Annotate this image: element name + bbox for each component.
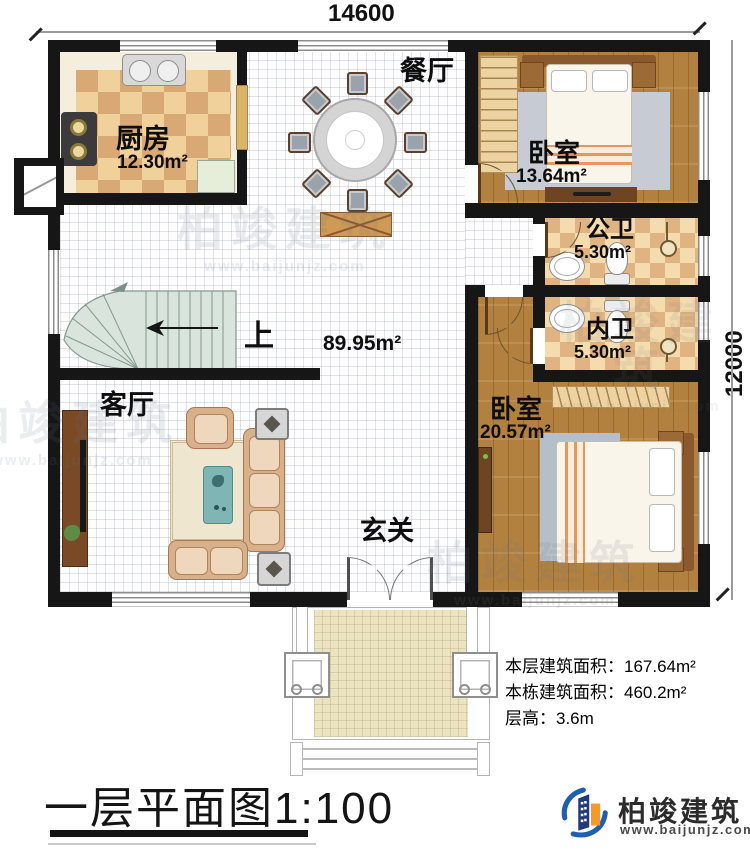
wardrobe: [552, 386, 670, 408]
window: [112, 592, 250, 607]
dimension-tick-top-left: [29, 27, 43, 41]
porch-side: [477, 742, 490, 776]
dimension-tick-top-right: [693, 21, 707, 35]
label-bath-public: 公卫: [586, 218, 634, 242]
window: [120, 40, 216, 52]
window: [298, 40, 448, 52]
window: [522, 592, 618, 607]
porch-column: [452, 652, 498, 698]
stove-icon: [61, 112, 97, 166]
label-bath-private: 内卫: [586, 318, 634, 342]
porch-mat: [314, 610, 468, 737]
title-underline: [50, 830, 308, 837]
pillow: [649, 504, 675, 552]
bed: [556, 441, 682, 563]
window: [698, 236, 710, 276]
hallway-floor: [465, 218, 533, 285]
dimension-width-label: 14600: [328, 2, 395, 26]
page-title: 一层平面图1:100: [44, 772, 394, 836]
kitchen-door-opening: [236, 85, 248, 150]
label-open-area: 89.95m²: [323, 333, 401, 354]
label-stairs-up: 上: [244, 322, 274, 352]
porch-step: [292, 758, 490, 760]
dining-chair: [347, 72, 368, 95]
armchair: [186, 407, 234, 449]
porch-side: [290, 742, 303, 776]
label-bedroom-top: 卧室: [528, 140, 580, 166]
pillow: [592, 70, 628, 92]
info-building-area: 本栋建筑面积：460.2m²: [505, 678, 686, 703]
wall: [523, 285, 710, 297]
label-entry: 玄关: [360, 518, 414, 545]
bed-stripe: [565, 442, 585, 563]
desk: [545, 187, 637, 202]
wall: [533, 370, 710, 382]
label-kitchen: 厨房: [116, 126, 170, 153]
nightstand: [520, 62, 544, 88]
label-bedroom-top-area: 13.64m²: [516, 167, 587, 186]
window: [698, 92, 710, 180]
tall-cabinet: [478, 447, 492, 533]
wardrobe: [480, 55, 518, 173]
coffee-table: [203, 466, 233, 524]
dimension-tick-bottom-right: [716, 587, 730, 601]
label-living: 客厅: [100, 392, 154, 419]
porch-column: [284, 652, 330, 698]
label-bath-private-area: 5.30m²: [574, 343, 631, 361]
pillow: [551, 70, 587, 92]
wall: [533, 256, 545, 285]
wall: [48, 193, 247, 205]
floor-plan-page: 14600 12000: [0, 0, 750, 855]
flue-niche-inner: [24, 166, 56, 207]
dining-chair: [288, 132, 311, 153]
shower-icon: [660, 240, 677, 257]
shower-icon: [660, 338, 677, 355]
fridge: [197, 160, 235, 193]
brand-logo-icon: [558, 784, 612, 840]
wall: [48, 368, 320, 380]
window: [698, 302, 710, 340]
kitchen-sink: [122, 54, 186, 86]
label-dining: 餐厅: [400, 58, 454, 85]
computer-icon: [573, 192, 611, 196]
porch-post: [466, 607, 478, 657]
label-bath-public-area: 5.30m²: [574, 243, 631, 261]
dining-chair: [347, 189, 368, 212]
wall: [533, 218, 545, 224]
wall: [465, 40, 478, 165]
title-underline-shadow: [48, 843, 316, 845]
nightstand: [632, 62, 656, 88]
wall: [533, 297, 545, 328]
dimension-width-line: [36, 31, 700, 33]
stairs: [58, 278, 258, 374]
wall: [465, 297, 478, 592]
dimension-height-line: [731, 40, 733, 600]
label-kitchen-area: 12.30m²: [117, 153, 188, 172]
porch-step: [292, 748, 490, 750]
dimension-height-label: 12000: [723, 291, 747, 397]
dining-table: [313, 98, 397, 182]
console-table: [320, 212, 392, 237]
brand-site: www.baijunjz.com: [620, 822, 750, 837]
wall: [465, 285, 485, 297]
porch-step: [292, 768, 490, 770]
info-floor-area: 本层建筑面积：167.64m²: [505, 652, 696, 677]
window: [698, 452, 710, 544]
side-table: [255, 408, 289, 440]
label-bedroom-bottom: 卧室: [490, 396, 542, 422]
info-floor-height: 层高：3.6m: [505, 704, 594, 729]
tv-icon: [80, 440, 86, 532]
porch-post: [296, 607, 308, 657]
dining-chair: [404, 132, 427, 153]
sofa-small: [168, 540, 248, 580]
pillow: [649, 448, 675, 496]
label-bedroom-bottom-area: 20.57m²: [480, 423, 551, 442]
sink-icon: [549, 304, 585, 333]
side-table: [257, 552, 291, 586]
window: [48, 250, 60, 334]
sofa-main: [243, 428, 285, 552]
